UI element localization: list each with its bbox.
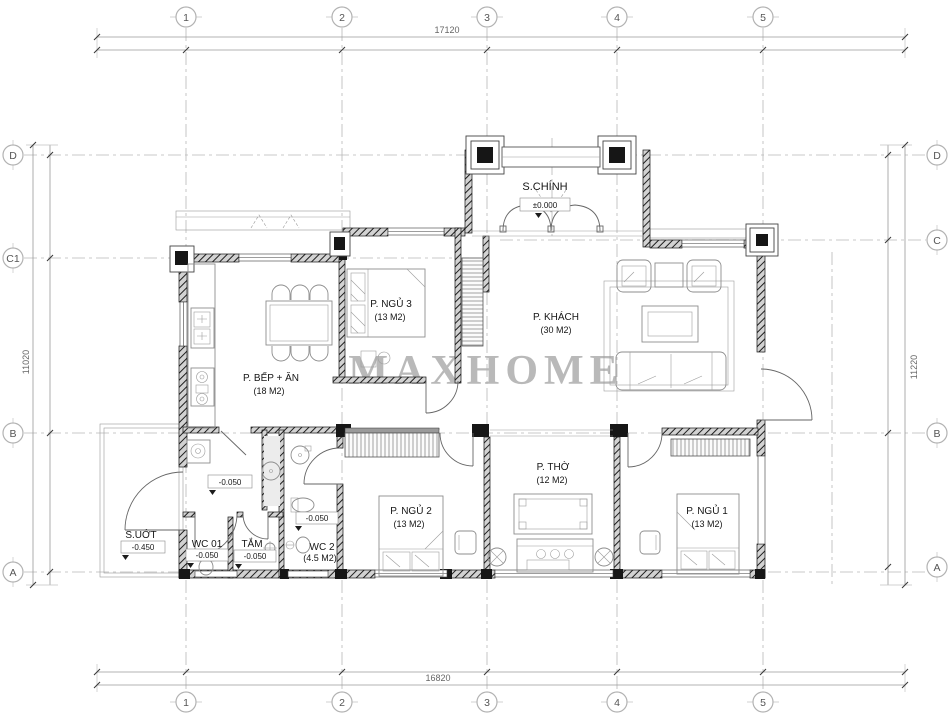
bed2-door: [440, 433, 473, 466]
bed1-right-window: [758, 456, 765, 544]
svg-text:B: B: [9, 428, 16, 440]
grid-bubble-bottom-5: 5: [747, 692, 779, 712]
area-kitchen: (18 M2): [253, 386, 284, 396]
grid-bubble-right-A: A: [927, 552, 947, 582]
grid-bubble-top-5: 5: [747, 7, 779, 27]
dim-right: 11220: [909, 355, 919, 379]
grid-bubble-right-D: D: [927, 140, 947, 170]
wetyard-door: [125, 472, 183, 530]
grid-bubble-right-C: C: [927, 225, 947, 255]
label-living: P. KHÁCH: [533, 310, 579, 323]
kitchen-top-window: [239, 254, 291, 261]
grid-bubble-bottom-1: 1: [170, 692, 202, 712]
level-bath: -0.050: [244, 552, 267, 561]
area-bed1: (13 M2): [691, 519, 722, 529]
label-worship: P. THỜ: [537, 460, 570, 473]
svg-text:D: D: [9, 150, 17, 162]
area-wc2: (4.5 M2): [303, 553, 337, 563]
area-living: (30 M2): [540, 325, 571, 335]
grid-bubble-top-3: 3: [471, 7, 503, 27]
wc2-door: [304, 448, 340, 484]
canopies: [100, 211, 760, 577]
svg-text:D: D: [933, 150, 941, 162]
grid-bubble-top-1: 1: [170, 7, 202, 27]
bed1-bottom-window: [662, 570, 750, 577]
porch-column-right: [598, 136, 636, 174]
label-bed1: P. NGỦ 1: [686, 504, 728, 517]
grid-bubble-left-C1: C1: [3, 243, 23, 273]
svg-text:1: 1: [183, 697, 189, 709]
dim-bottom: 16820: [425, 673, 450, 683]
svg-text:2: 2: [339, 697, 345, 709]
dining-table: [266, 285, 332, 361]
svg-text:2: 2: [339, 12, 345, 24]
grid-bubble-top-4: 4: [601, 7, 633, 27]
worship-bottom-window: [495, 570, 613, 577]
svg-text:3: 3: [484, 697, 490, 709]
bed1-door: [628, 433, 662, 467]
porch-column-left: [466, 136, 504, 174]
grid-bubble-left-A: A: [3, 557, 23, 587]
svg-text:4: 4: [614, 12, 620, 24]
svg-text:5: 5: [760, 12, 766, 24]
worship-altar: [488, 494, 613, 572]
label-kitchen: P. BẾP + ĂN: [243, 371, 299, 384]
label-porch: S.CHÍNH: [522, 180, 567, 193]
area-worship: (12 M2): [536, 475, 567, 485]
svg-text:B: B: [933, 428, 940, 440]
floor-plan-drawing: 17120 16820 11020 11220 1 2 3 4: [0, 0, 950, 720]
bed3-top-window: [388, 228, 444, 235]
svg-text:A: A: [933, 562, 940, 574]
watermark: MAXHOME: [348, 348, 623, 394]
floor-plan-sheet: 17120 16820 11020 11220 1 2 3 4: [0, 0, 950, 720]
corner-column-ne: [746, 224, 778, 256]
svg-text:1: 1: [183, 12, 189, 24]
grid-bubble-left-B: B: [3, 418, 23, 448]
ornate-columns: [170, 136, 778, 272]
grid-bubble-right-B: B: [927, 418, 947, 448]
grid-bubble-top-2: 2: [326, 7, 358, 27]
level-porch: ±0.000: [533, 201, 558, 210]
kitchen-left-window: [180, 302, 187, 346]
label-wc2: WC 2: [310, 542, 335, 553]
svg-text:4: 4: [614, 697, 620, 709]
grid-bubble-left-D: D: [3, 140, 23, 170]
level-corridor: -0.050: [219, 478, 242, 487]
svg-text:C: C: [933, 235, 941, 247]
level-wc2: -0.050: [306, 514, 329, 523]
column-grid2-top: [330, 232, 350, 256]
level-wc1: -0.050: [196, 551, 219, 560]
area-bed2: (13 M2): [393, 519, 424, 529]
dim-top: 17120: [434, 25, 459, 35]
label-bed2: P. NGỦ 2: [390, 504, 432, 517]
living-side-door: [761, 369, 812, 420]
corner-column-nw: [170, 246, 194, 272]
svg-text:A: A: [9, 567, 16, 579]
grid-bubble-bottom-2: 2: [326, 692, 358, 712]
label-bed3: P. NGỦ 3: [370, 297, 412, 310]
area-bed3: (13 M2): [374, 312, 405, 322]
dim-left: 11020: [21, 350, 31, 374]
living-top-window: [682, 240, 744, 247]
kitchen-counter: [188, 264, 215, 428]
label-wc1: WC 01: [192, 539, 223, 550]
svg-text:C1: C1: [6, 253, 20, 265]
label-wetyard: S.UỚT: [125, 528, 156, 541]
hall-wardrobe: [462, 258, 483, 346]
svg-text:3: 3: [484, 12, 490, 24]
kitchen-corridor-door: [221, 431, 246, 455]
grid-bubble-bottom-3: 3: [471, 692, 503, 712]
label-bath: TẮM: [241, 537, 262, 550]
bed1-wardrobe: [671, 439, 750, 456]
bath-door: [243, 514, 268, 539]
level-wetyard: -0.450: [132, 543, 155, 552]
grid-bubble-bottom-4: 4: [601, 692, 633, 712]
bed2-wardrobe: [345, 433, 439, 457]
svg-text:5: 5: [760, 697, 766, 709]
